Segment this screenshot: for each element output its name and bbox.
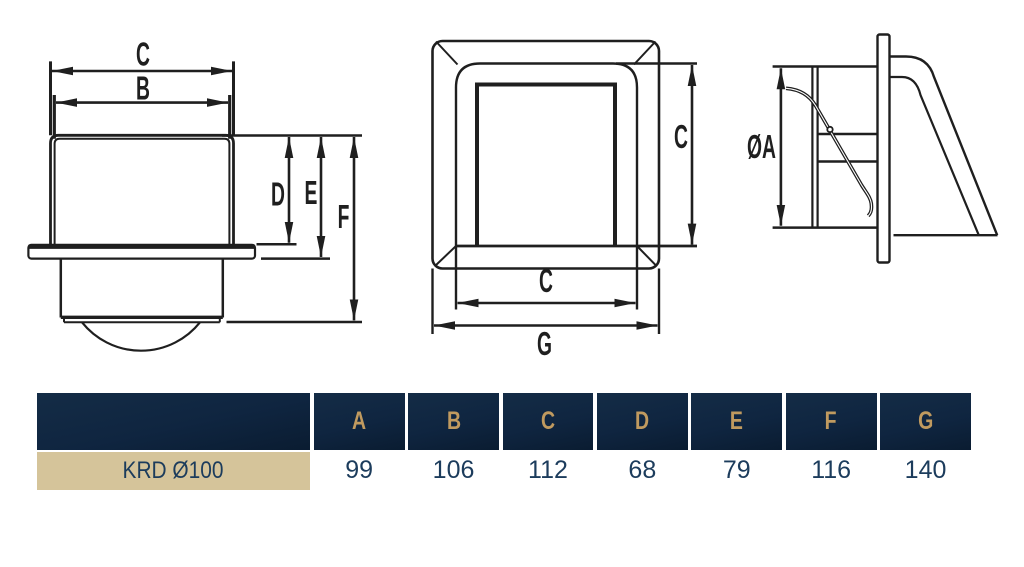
svg-text:D: D <box>271 176 285 213</box>
svg-text:ØA: ØA <box>747 129 776 166</box>
svg-text:E: E <box>305 175 318 212</box>
svg-text:F: F <box>338 199 350 236</box>
svg-text:B: B <box>136 70 150 107</box>
svg-text:C: C <box>674 119 688 156</box>
svg-text:C: C <box>539 263 553 300</box>
svg-text:G: G <box>537 326 552 363</box>
svg-text:C: C <box>136 36 150 73</box>
